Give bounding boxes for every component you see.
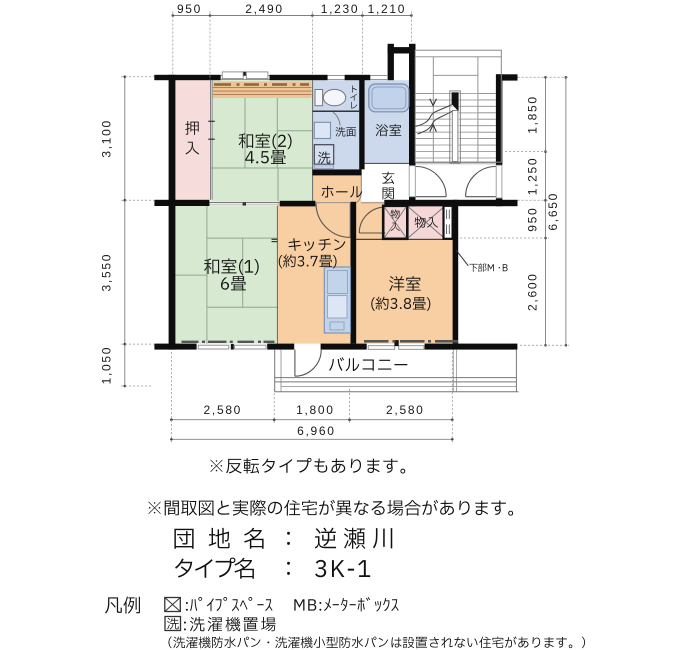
svg-text:1,210: 1,210 [368,2,407,16]
svg-text:1,250: 1,250 [525,157,539,196]
svg-text:950: 950 [177,2,202,16]
svg-text:1,230: 1,230 [321,2,360,16]
svg-text:2,490: 2,490 [245,2,284,16]
svg-text:1,800: 1,800 [296,403,335,417]
svg-text:950: 950 [525,207,539,232]
svg-text:1,050: 1,050 [100,346,114,385]
svg-text:2,600: 2,600 [525,272,539,311]
svg-text:6,650: 6,650 [546,192,560,231]
svg-text:6,960: 6,960 [297,424,336,438]
svg-text:3,550: 3,550 [100,253,114,292]
svg-text:3,100: 3,100 [100,119,114,158]
svg-text:2,580: 2,580 [204,403,243,417]
svg-text:1,850: 1,850 [525,95,539,134]
svg-text:2,580: 2,580 [386,403,425,417]
